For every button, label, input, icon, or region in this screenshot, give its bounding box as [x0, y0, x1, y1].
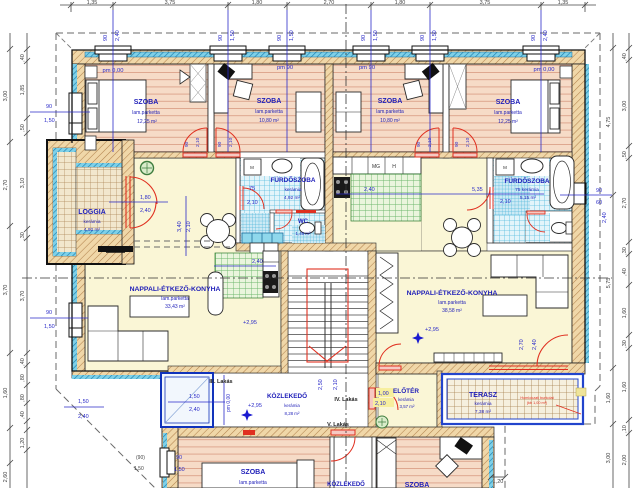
svg-text:5,75: 5,75 — [606, 278, 612, 289]
svg-text:1,20: 1,20 — [20, 438, 26, 449]
svg-text:FÜRDŐSZOBA: FÜRDŐSZOBA — [270, 175, 315, 184]
svg-text:lam.parketta: lam.parketta — [132, 110, 160, 116]
svg-text:2,10: 2,10 — [427, 137, 433, 147]
svg-text:1,60: 1,60 — [3, 388, 9, 399]
svg-text:,40: ,40 — [622, 268, 628, 276]
svg-text:lam.parketta: lam.parketta — [239, 480, 267, 486]
svg-text:lam.parketta: lam.parketta — [161, 296, 189, 302]
svg-text:2,40: 2,40 — [532, 339, 538, 350]
svg-text:90: 90 — [596, 188, 602, 194]
svg-text:1,50: 1,50 — [432, 30, 438, 41]
svg-text:90: 90 — [217, 141, 223, 147]
svg-text:SZOBA: SZOBA — [405, 482, 430, 488]
svg-text:,40: ,40 — [622, 53, 628, 61]
svg-text:,80: ,80 — [20, 394, 26, 402]
svg-text:,40: ,40 — [20, 358, 26, 366]
svg-text:2,70: 2,70 — [622, 198, 628, 209]
svg-text:90: 90 — [176, 455, 182, 461]
svg-text:SZOBA: SZOBA — [378, 98, 403, 105]
svg-text:SZOBA: SZOBA — [241, 469, 266, 476]
svg-text:3,00: 3,00 — [606, 453, 612, 464]
svg-text:2,50: 2,50 — [318, 379, 324, 390]
svg-text:1,49 m²: 1,49 m² — [296, 231, 311, 236]
svg-text:90: 90 — [531, 35, 537, 41]
svg-text:1,20: 1,20 — [493, 479, 504, 485]
svg-text:2,10: 2,10 — [500, 199, 511, 205]
svg-text:90: 90 — [184, 141, 190, 147]
svg-text:1,50: 1,50 — [230, 30, 236, 41]
svg-text:(90): (90) — [136, 455, 145, 461]
svg-text:90: 90 — [277, 35, 283, 41]
svg-text:75 kerámia: 75 kerámia — [515, 187, 539, 193]
svg-text:kerámia: kerámia — [398, 397, 414, 402]
svg-text:90: 90 — [103, 35, 109, 41]
svg-text:3,57 m²: 3,57 m² — [400, 404, 415, 409]
svg-text:lam.parketta: lam.parketta — [376, 109, 404, 115]
svg-text:pm 0,00: pm 0,00 — [226, 394, 232, 412]
svg-text:III. Lakás: III. Lakás — [209, 379, 232, 385]
svg-text:M: M — [250, 165, 254, 170]
svg-text:+2,95: +2,95 — [243, 320, 257, 326]
svg-text:3,75: 3,75 — [165, 0, 176, 6]
svg-text:2,10: 2,10 — [375, 401, 386, 407]
svg-text:KÖZLEKEDŐ: KÖZLEKEDŐ — [327, 481, 365, 488]
svg-text:,80: ,80 — [20, 374, 26, 382]
svg-text:NAPPALI-ÉTKEZŐ-KONYHA: NAPPALI-ÉTKEZŐ-KONYHA — [407, 288, 498, 297]
svg-text:,10: ,10 — [622, 425, 628, 433]
svg-text:SZOBA: SZOBA — [257, 98, 282, 105]
svg-text:2,40: 2,40 — [140, 208, 151, 214]
svg-text:SZOBA: SZOBA — [496, 99, 521, 106]
svg-text:pm 90: pm 90 — [277, 65, 293, 71]
svg-text:,40: ,40 — [20, 411, 26, 419]
svg-text:8,28 m²: 8,28 m² — [285, 411, 300, 416]
svg-text:12,25 m²: 12,25 m² — [498, 119, 518, 125]
svg-text:,30: ,30 — [622, 340, 628, 348]
svg-text:10,80 m²: 10,80 m² — [259, 118, 279, 124]
svg-text:TERASZ: TERASZ — [469, 392, 498, 399]
svg-text:V. Lakás: V. Lakás — [327, 422, 349, 428]
svg-text:NAPPALI-ÉTKEZŐ-KONYHA: NAPPALI-ÉTKEZŐ-KONYHA — [130, 284, 221, 293]
svg-text:pm 0,00: pm 0,00 — [103, 68, 124, 74]
svg-text:Homlokzati burkolat: Homlokzati burkolat — [520, 396, 554, 400]
svg-text:4,92 m²: 4,92 m² — [284, 195, 301, 201]
svg-text:90: 90 — [46, 104, 52, 110]
svg-text:KÖZLEKEDŐ: KÖZLEKEDŐ — [267, 391, 307, 400]
svg-text:33,43 m²: 33,43 m² — [165, 304, 185, 310]
svg-text:pm 0,00: pm 0,00 — [534, 67, 555, 73]
svg-text:5,15 m²: 5,15 m² — [520, 195, 537, 201]
svg-text:2,40: 2,40 — [189, 407, 200, 413]
svg-text:2,10: 2,10 — [186, 221, 192, 232]
svg-text:1,60: 1,60 — [622, 382, 628, 393]
svg-text:2,40: 2,40 — [364, 187, 375, 193]
svg-text:,40: ,40 — [20, 54, 26, 62]
svg-text:2,70: 2,70 — [3, 180, 9, 191]
svg-text:10,80 m²: 10,80 m² — [380, 118, 400, 124]
svg-text:2,40: 2,40 — [115, 30, 121, 41]
svg-text:1,50: 1,50 — [373, 30, 379, 41]
svg-text:1,50: 1,50 — [134, 466, 144, 472]
svg-text:1,35: 1,35 — [87, 0, 98, 6]
svg-text:2,40: 2,40 — [78, 414, 89, 420]
svg-text:2,10: 2,10 — [228, 137, 234, 147]
svg-text:5,35: 5,35 — [472, 187, 483, 193]
svg-text:M: M — [503, 165, 507, 170]
svg-text:2,10: 2,10 — [195, 137, 201, 147]
svg-text:WC: WC — [298, 219, 309, 225]
svg-text:90: 90 — [420, 35, 426, 41]
svg-text:2,40: 2,40 — [602, 212, 608, 223]
svg-text:1,00: 1,00 — [378, 391, 389, 397]
svg-text:1,50: 1,50 — [44, 118, 55, 124]
svg-text:2,40: 2,40 — [543, 30, 549, 41]
svg-text:2,10: 2,10 — [465, 137, 471, 147]
svg-text:kerámia: kerámia — [284, 403, 300, 408]
svg-text:1,80: 1,80 — [252, 0, 263, 6]
svg-text:90: 90 — [218, 35, 224, 41]
svg-text:1,35: 1,35 — [558, 0, 569, 6]
svg-text:90: 90 — [361, 35, 367, 41]
svg-text:MG: MG — [372, 164, 380, 170]
svg-text:lam.parketta: lam.parketta — [438, 300, 466, 306]
svg-text:3,00: 3,00 — [3, 91, 9, 102]
svg-text:pm 90: pm 90 — [359, 65, 375, 71]
svg-text:ELŐTÉR: ELŐTÉR — [393, 386, 419, 395]
svg-text:4,92 m²: 4,92 m² — [84, 227, 101, 233]
svg-text:3,10: 3,10 — [20, 178, 26, 189]
svg-text:SZOBA: SZOBA — [134, 99, 159, 106]
svg-text:1,50: 1,50 — [78, 399, 89, 405]
svg-text:2,70: 2,70 — [519, 339, 525, 350]
svg-text:3,40: 3,40 — [177, 221, 183, 232]
svg-text:60: 60 — [596, 200, 602, 206]
svg-text:1,50: 1,50 — [44, 324, 55, 330]
svg-text:1,80: 1,80 — [140, 195, 151, 201]
svg-text:1,50: 1,50 — [174, 467, 185, 473]
svg-text:2,00: 2,00 — [622, 455, 628, 466]
svg-text:90: 90 — [416, 141, 422, 147]
svg-text:,50: ,50 — [20, 124, 26, 132]
svg-text:2,10: 2,10 — [247, 200, 258, 206]
svg-text:1,60: 1,60 — [622, 308, 628, 319]
svg-text:1,80: 1,80 — [395, 0, 406, 6]
svg-text:1,85: 1,85 — [20, 85, 26, 96]
svg-text:90: 90 — [46, 310, 52, 316]
svg-text:12,25 m²: 12,25 m² — [137, 119, 157, 125]
svg-text:H: H — [392, 164, 396, 170]
svg-text:7,38 m²: 7,38 m² — [475, 409, 492, 415]
svg-text:3,00: 3,00 — [622, 101, 628, 112]
svg-text:90: 90 — [454, 141, 460, 147]
svg-text:4,75: 4,75 — [606, 117, 612, 128]
svg-text:+2,95: +2,95 — [248, 403, 262, 409]
svg-text:2,10: 2,10 — [333, 379, 339, 390]
svg-text:2,70: 2,70 — [324, 0, 335, 6]
svg-text:75: 75 — [249, 186, 255, 192]
svg-text:3,75: 3,75 — [480, 0, 491, 6]
svg-text:2,60: 2,60 — [3, 472, 9, 483]
svg-text:+2,95: +2,95 — [425, 327, 439, 333]
svg-text:(kb 1,00 m²): (kb 1,00 m²) — [527, 401, 548, 405]
svg-text:,50: ,50 — [622, 151, 628, 159]
svg-text:2,40: 2,40 — [252, 259, 263, 265]
svg-text:kerámia: kerámia — [474, 401, 491, 407]
svg-text:,30: ,30 — [622, 247, 628, 255]
svg-text:1,50: 1,50 — [189, 394, 200, 400]
svg-text:lam.parketta: lam.parketta — [494, 110, 522, 116]
svg-text:,30: ,30 — [20, 232, 26, 240]
svg-text:1,50: 1,50 — [289, 30, 295, 41]
svg-text:kerámia: kerámia — [284, 187, 301, 193]
svg-text:IV. Lakás: IV. Lakás — [334, 397, 357, 403]
svg-text:LOGGIA: LOGGIA — [78, 209, 106, 216]
svg-text:lam.parketta: lam.parketta — [255, 109, 283, 115]
svg-text:38,58 m²: 38,58 m² — [442, 308, 462, 314]
svg-text:1,60: 1,60 — [606, 393, 612, 404]
svg-text:kerámia: kerámia — [83, 219, 100, 225]
svg-text:FÜRDŐSZOBA: FÜRDŐSZOBA — [504, 176, 549, 185]
svg-text:3,70: 3,70 — [3, 285, 9, 296]
svg-text:3,70: 3,70 — [20, 291, 26, 302]
